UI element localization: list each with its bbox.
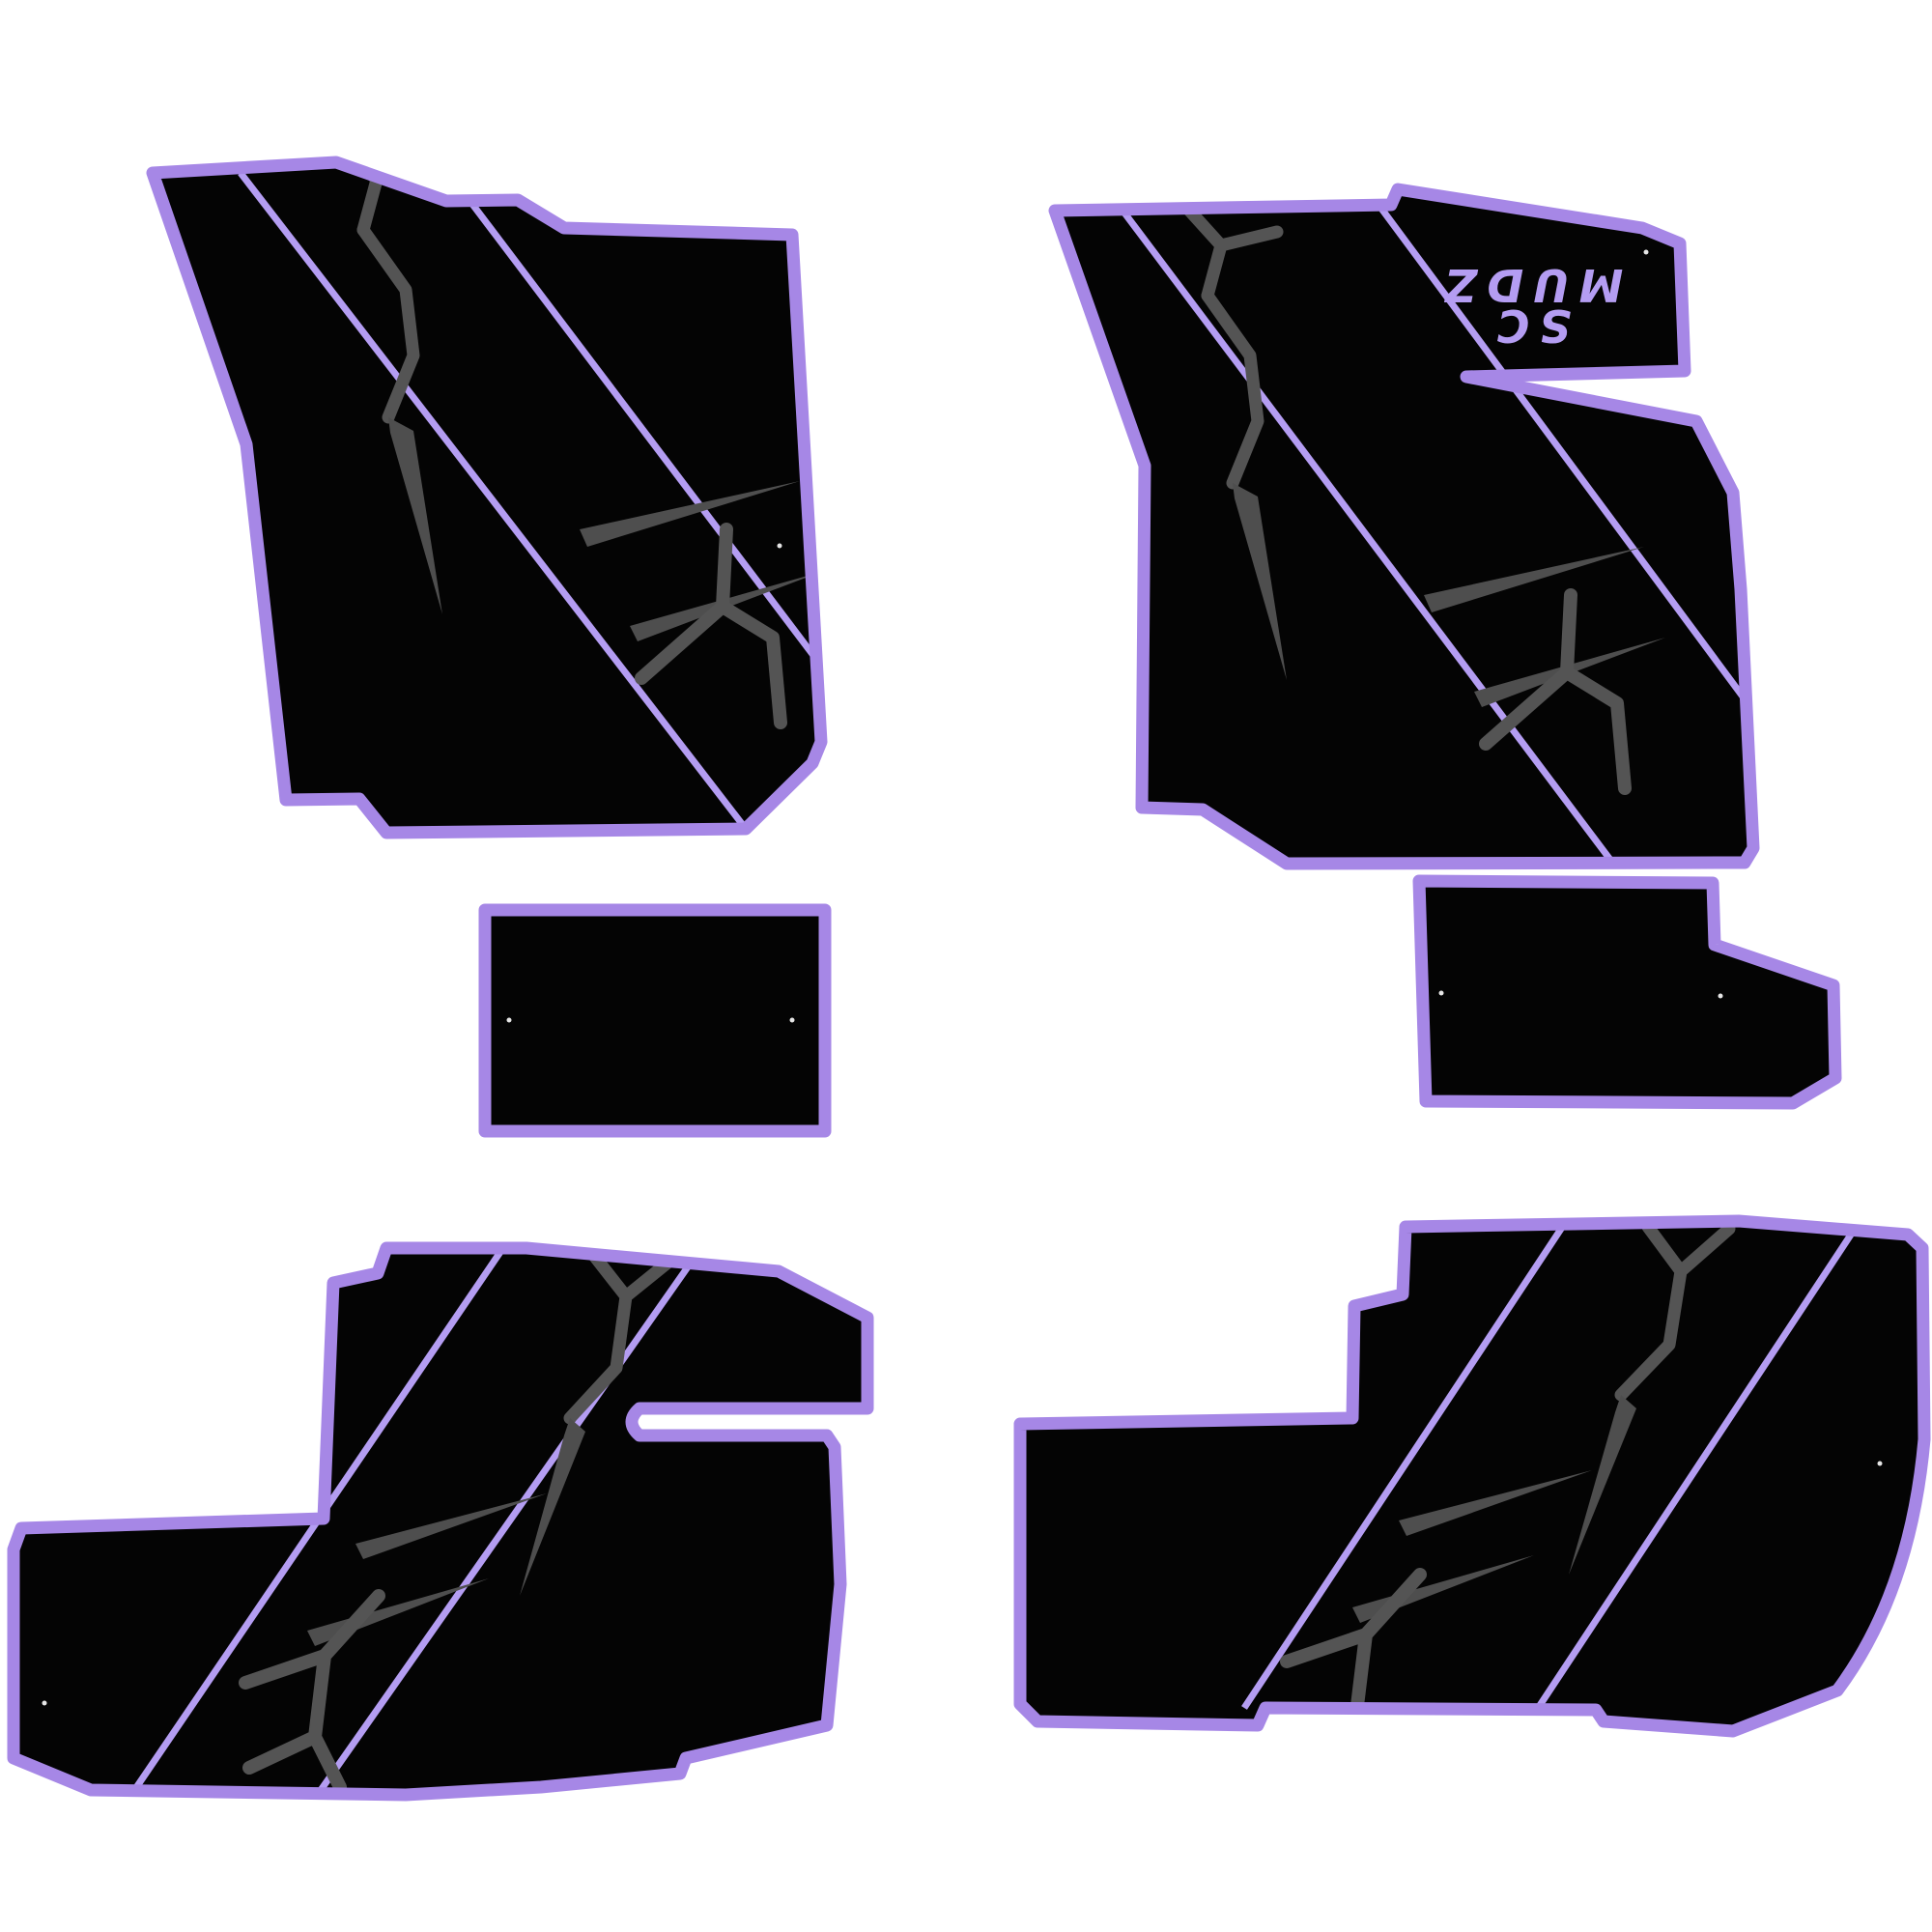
- panel-bottom-right-fill: [1020, 1221, 1924, 1731]
- panel-top-right-fill: [1055, 189, 1753, 864]
- registration-dot-8: [43, 1701, 47, 1706]
- panel-mid-right: [1419, 881, 1835, 1103]
- brand-logo-line-2: MUDZ: [1435, 259, 1624, 311]
- decal-sheet: SCMUDZ: [0, 0, 1932, 1932]
- decal-kit-graphic: SCMUDZ: [0, 0, 1932, 1932]
- registration-dot-6: [1644, 250, 1649, 255]
- panel-bottom-right: [1020, 1221, 1924, 1731]
- registration-dot-5: [778, 544, 782, 549]
- registration-dot-3: [1439, 991, 1444, 996]
- registration-dot-4: [1719, 994, 1723, 999]
- panel-top-right: SCMUDZ: [1055, 189, 1753, 864]
- panel-mid-left: [485, 910, 825, 1131]
- panel-bottom-left: [14, 1248, 867, 1795]
- registration-dot-2: [790, 1018, 795, 1023]
- panel-mid-right-fill: [1419, 881, 1835, 1103]
- panel-top-left: [153, 141, 821, 833]
- registration-dot-1: [507, 1018, 512, 1023]
- panel-mid-left-fill: [485, 910, 825, 1131]
- registration-dot-7: [1878, 1462, 1883, 1466]
